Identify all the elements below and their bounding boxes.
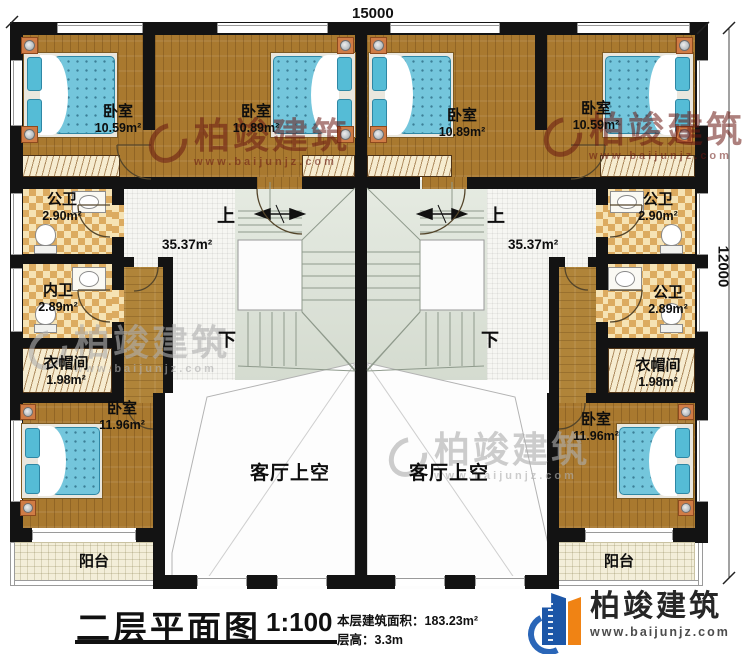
pillow <box>372 57 387 91</box>
wall <box>158 257 173 267</box>
dimension-top: 15000 <box>352 5 394 22</box>
stair-up-right: 上 <box>487 202 505 228</box>
void-label-right: 客厅上空 <box>409 458 489 485</box>
wall <box>10 338 112 348</box>
closet-strip <box>302 155 355 177</box>
room-label-bath2-left: 内卫 2.89m² <box>10 283 106 314</box>
wall <box>596 338 708 348</box>
wall <box>10 254 112 264</box>
wall <box>525 575 557 589</box>
wall <box>165 575 197 589</box>
wall <box>367 177 420 189</box>
window <box>277 576 327 586</box>
nightstand <box>21 126 38 143</box>
door-opening <box>596 290 608 322</box>
title-info: 本层建筑面积：183.23m² 层高：3.3m <box>337 612 478 650</box>
pillow <box>25 428 40 458</box>
nightstand <box>678 404 694 420</box>
room-label-bedroom-tmr: 卧室 10.89m² <box>414 108 510 139</box>
wall <box>596 189 608 205</box>
room-label-bedroom-bl: 卧室 11.96m² <box>74 401 170 432</box>
balcony-rail <box>10 542 15 586</box>
wall <box>445 575 475 589</box>
bed-sheet <box>649 55 677 135</box>
balcony-rail <box>698 542 703 586</box>
logo-building-blue <box>542 593 566 645</box>
wall <box>467 177 708 189</box>
bed-sheet <box>311 55 339 135</box>
room-label-bedroom-tr: 卧室 10.59m² <box>548 101 644 132</box>
window <box>197 576 247 586</box>
hall-area-left: 35.37m² <box>162 237 212 252</box>
stair-up-left: 上 <box>217 202 235 228</box>
pillow <box>675 464 690 494</box>
wall <box>10 528 32 542</box>
wall <box>302 177 355 189</box>
corridor-right <box>559 267 598 413</box>
logo-building-orange <box>568 597 581 645</box>
door-opening <box>143 130 155 177</box>
door-opening <box>422 177 467 189</box>
window <box>395 576 445 586</box>
wall <box>596 254 708 264</box>
wall <box>549 257 565 267</box>
window <box>697 420 708 502</box>
pillow <box>337 57 352 91</box>
pillow <box>675 428 690 458</box>
wall <box>247 575 277 589</box>
closet-strip <box>22 155 120 177</box>
wall <box>673 528 708 542</box>
nightstand <box>678 500 694 516</box>
toilet <box>660 224 684 256</box>
brand-logo-icon <box>530 591 582 647</box>
drawing-scale: 1:100 <box>266 607 333 638</box>
brand-website: www.baijunjz.com <box>590 625 730 639</box>
room-label-bath1-right: 公卫 2.90m² <box>610 192 706 223</box>
door-opening <box>535 130 547 177</box>
corridor-left <box>124 267 163 413</box>
wall <box>596 322 608 403</box>
door-opening <box>596 205 608 237</box>
door-opening <box>112 205 124 237</box>
room-label-bedroom-tl: 卧室 10.59m² <box>70 104 166 135</box>
wall <box>547 528 585 542</box>
nightstand <box>20 500 36 516</box>
window <box>217 23 328 33</box>
window <box>475 576 525 586</box>
pillow <box>675 57 690 91</box>
window <box>390 23 500 33</box>
pillow <box>27 57 42 91</box>
window <box>697 60 708 126</box>
stair-right <box>367 180 487 380</box>
balcony-rail <box>557 580 703 586</box>
room-label-bedroom-br: 卧室 11.96m² <box>548 412 644 443</box>
stair-down-left: 下 <box>218 326 236 352</box>
nightstand <box>337 37 354 54</box>
nightstand <box>676 37 693 54</box>
floor-area-label: 本层建筑面积： <box>337 614 425 628</box>
title-underline <box>75 640 337 644</box>
window <box>57 23 143 33</box>
hall-area-right: 35.37m² <box>508 237 558 252</box>
floor-area-value: 183.23m² <box>425 614 479 628</box>
bed-sheet <box>649 426 677 496</box>
door-opening <box>112 290 124 322</box>
wall <box>367 575 395 589</box>
void-label-left: 客厅上空 <box>250 458 330 485</box>
balcony-label-right: 阳台 <box>604 550 634 571</box>
brand-logo: 柏竣建筑 www.baijunjz.com <box>530 591 730 647</box>
wall <box>112 237 124 290</box>
room-label-bath2-right: 公卫 2.89m² <box>620 285 716 316</box>
brand-name: 柏竣建筑 <box>590 591 730 623</box>
wall <box>10 177 257 189</box>
window <box>11 60 22 126</box>
wall <box>112 189 124 205</box>
stair-left <box>235 180 355 380</box>
window <box>577 23 690 33</box>
closet-strip <box>367 155 452 177</box>
closet-strip <box>600 155 695 177</box>
nightstand <box>21 37 38 54</box>
wall-party <box>355 22 367 589</box>
dimension-right: 12000 <box>714 246 731 288</box>
balcony-rail <box>12 580 165 586</box>
pillow <box>25 464 40 494</box>
wall <box>136 528 165 542</box>
room-label-cloak-left: 衣帽间 1.98m² <box>18 356 114 387</box>
balcony-label-left: 阳台 <box>79 550 109 571</box>
toilet <box>34 224 58 256</box>
bed <box>21 423 103 499</box>
sliding-door <box>32 530 136 540</box>
floor-height-value: 3.3m <box>375 633 404 647</box>
nightstand <box>370 126 387 143</box>
floor-height-label: 层高： <box>337 633 375 647</box>
nightstand <box>337 126 354 143</box>
stair-down-right: 下 <box>481 326 499 352</box>
nightstand <box>20 404 36 420</box>
room-label-bath1-left: 公卫 2.90m² <box>14 192 110 223</box>
room-label-bedroom-tml: 卧室 10.89m² <box>208 104 304 135</box>
wall <box>327 575 355 589</box>
nightstand <box>676 126 693 143</box>
wall <box>549 267 559 393</box>
floor-plan: 柏竣建筑 www.baijunjz.com 柏竣建筑 www.baijunjz.… <box>0 0 750 654</box>
sliding-door <box>585 530 673 540</box>
room-label-cloak-right: 衣帽间 1.98m² <box>610 358 706 389</box>
wall <box>535 22 547 130</box>
wall <box>124 257 134 267</box>
wall <box>163 267 173 393</box>
nightstand <box>370 37 387 54</box>
wall <box>588 257 608 267</box>
door-opening <box>257 177 302 189</box>
